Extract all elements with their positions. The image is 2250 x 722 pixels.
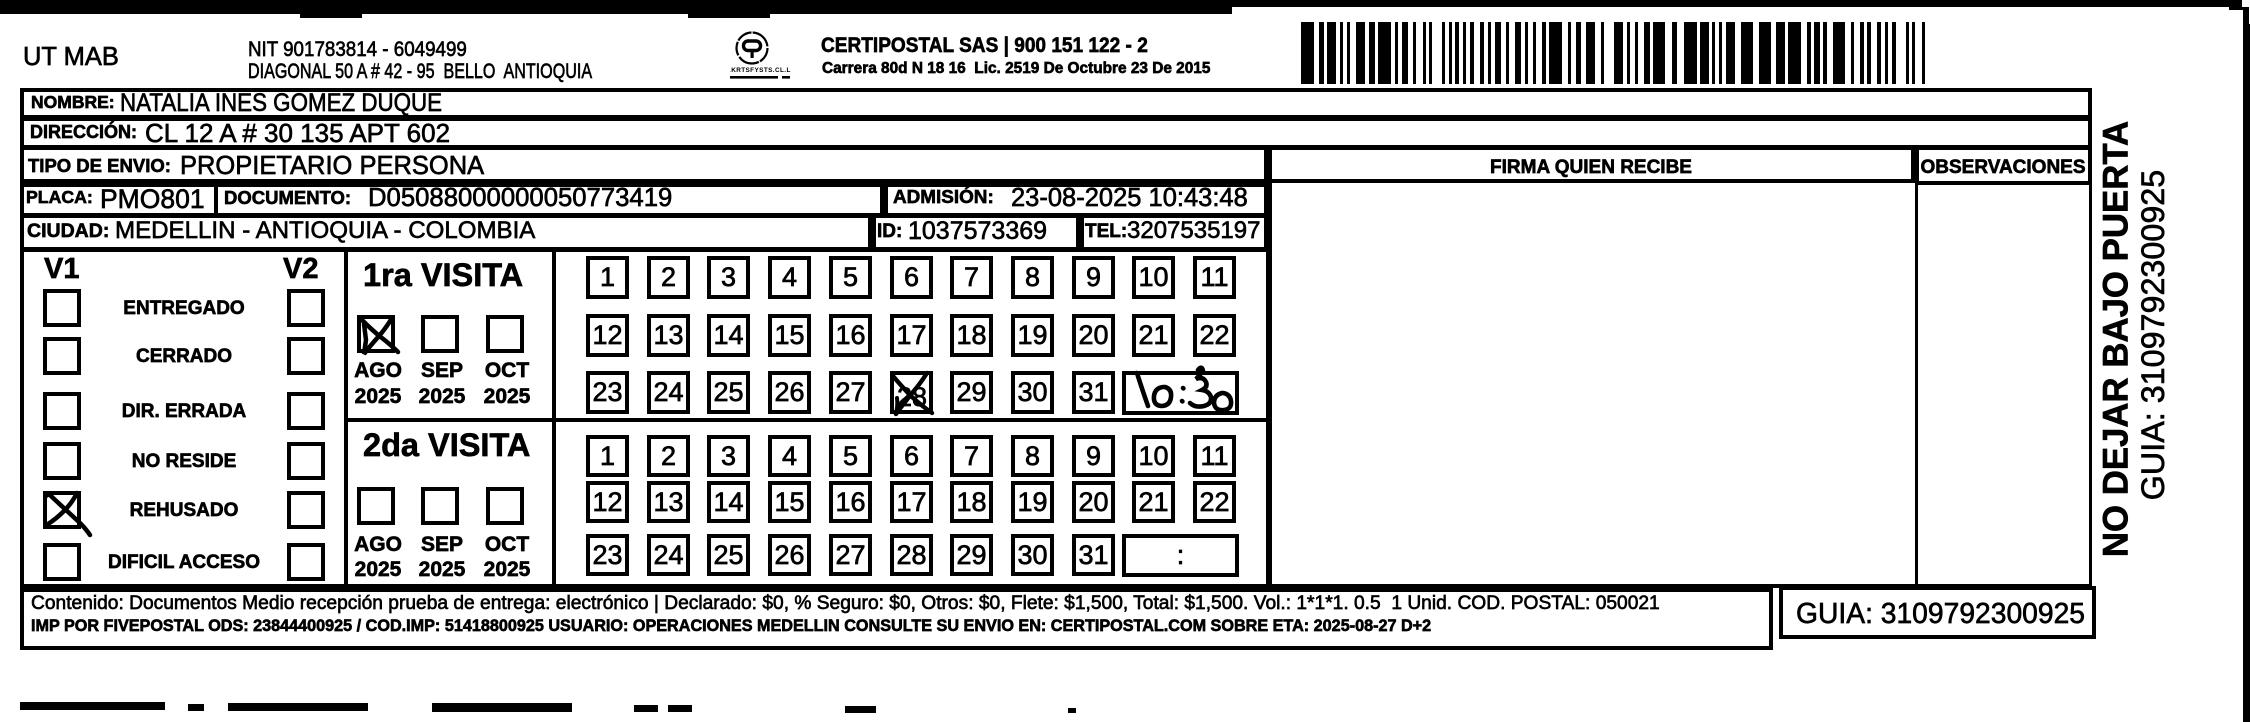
svg-text:C.KRTSFYSTS.CL.L: C.KRTSFYSTS.CL.L [730,67,791,74]
